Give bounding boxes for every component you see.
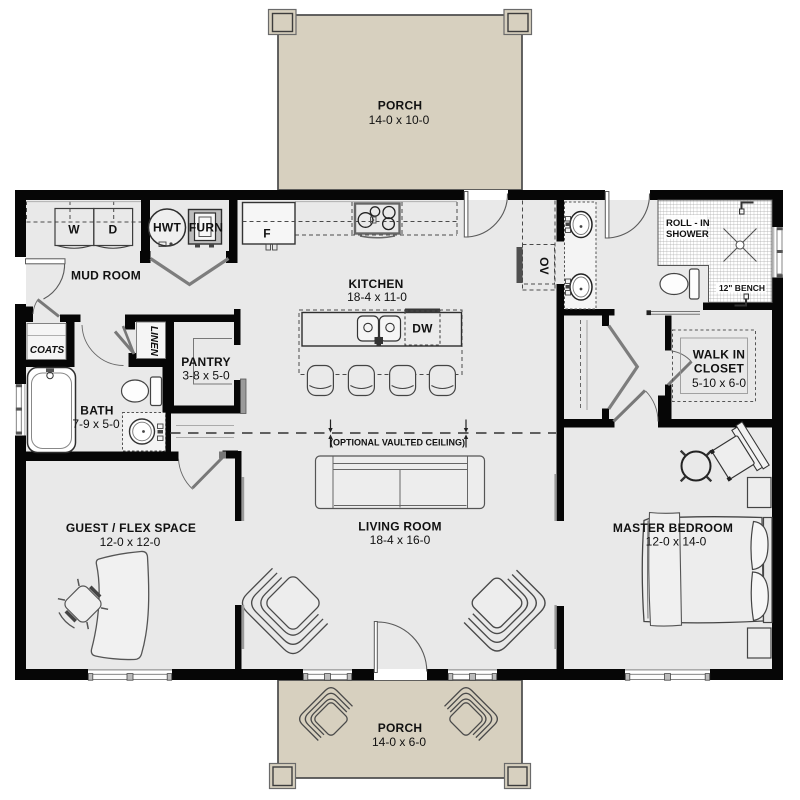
svg-text:7-9 x 5-0: 7-9 x 5-0 [72,417,120,431]
svg-text:12" BENCH: 12" BENCH [719,283,765,293]
svg-text:18-4 x 11-0: 18-4 x 11-0 [347,290,407,304]
svg-text:D: D [109,223,118,237]
svg-text:MASTER BEDROOM: MASTER BEDROOM [613,521,733,535]
svg-text:18-4 x 16-0: 18-4 x 16-0 [370,533,431,547]
svg-text:14-0 x 6-0: 14-0 x 6-0 [372,735,426,749]
svg-text:MUD ROOM: MUD ROOM [71,269,141,283]
svg-text:ROLL - IN: ROLL - IN [666,218,710,229]
svg-text:LINEN: LINEN [148,326,159,357]
svg-text:HWT: HWT [153,221,181,235]
svg-text:3-8 x 5-0: 3-8 x 5-0 [182,369,230,383]
svg-text:COATS: COATS [30,345,65,356]
svg-text:W: W [68,223,80,237]
svg-text:FURN: FURN [189,221,223,235]
svg-text:DW: DW [412,322,433,336]
svg-text:WALK IN: WALK IN [693,348,745,362]
svg-text:F: F [263,227,271,241]
svg-text:14-0 x 10-0: 14-0 x 10-0 [369,113,430,127]
svg-text:SHOWER: SHOWER [666,229,709,240]
svg-text:OV: OV [537,257,551,275]
svg-text:(OPTIONAL VAULTED CEILING): (OPTIONAL VAULTED CEILING) [330,438,465,448]
svg-text:12-0 x 14-0: 12-0 x 14-0 [646,535,707,549]
svg-text:5-10 x 6-0: 5-10 x 6-0 [692,376,746,390]
svg-text:PORCH: PORCH [378,99,423,113]
svg-text:GUEST / FLEX SPACE: GUEST / FLEX SPACE [66,521,196,535]
svg-text:BATH: BATH [80,404,113,418]
svg-text:LIVING ROOM: LIVING ROOM [358,520,441,534]
svg-text:KITCHEN: KITCHEN [348,277,403,291]
svg-text:CLOSET: CLOSET [694,362,745,376]
svg-text:PANTRY: PANTRY [181,355,231,369]
svg-text:PORCH: PORCH [378,721,423,735]
svg-text:12-0 x 12-0: 12-0 x 12-0 [100,535,161,549]
